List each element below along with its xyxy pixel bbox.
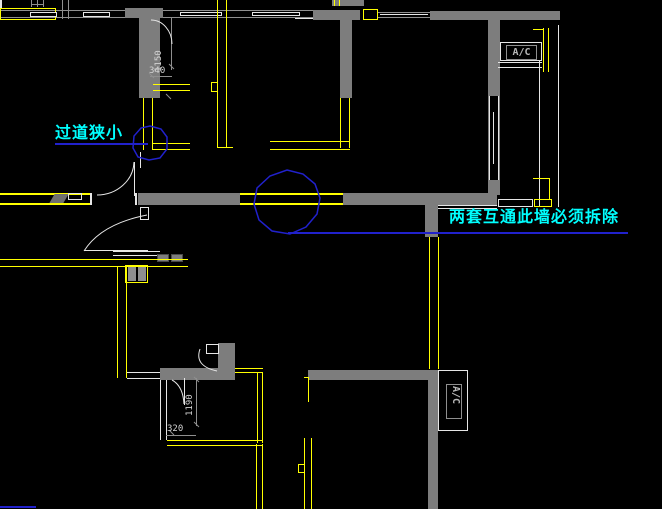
window-symbol	[83, 12, 110, 17]
wall-segment	[138, 193, 240, 205]
label-box-cut	[332, 0, 364, 6]
dimension-text: 320	[167, 424, 189, 434]
door-arc	[84, 215, 147, 251]
leader-line	[288, 232, 628, 234]
window-line	[380, 14, 428, 15]
corner-mark	[0, 0, 2, 8]
wall-outline	[217, 0, 227, 148]
wall-outline	[270, 141, 350, 150]
window-box	[534, 199, 552, 207]
wall-outline	[153, 143, 190, 150]
window-symbol	[30, 12, 57, 17]
wall-to-demolish[interactable]	[240, 193, 343, 205]
door-leaf	[140, 152, 141, 168]
window-symbol	[489, 96, 499, 180]
window-symbol	[68, 193, 82, 200]
window-box	[363, 9, 378, 20]
window-tick	[339, 0, 340, 6]
leader-line-fragment	[0, 506, 36, 508]
dimension-tick	[166, 94, 172, 100]
door-jamb	[135, 193, 137, 205]
dimension-line	[171, 18, 172, 70]
wall-line	[127, 372, 160, 379]
wall-outline	[117, 267, 127, 378]
wall-segment	[308, 370, 438, 380]
window-line	[549, 178, 550, 200]
annotation-text-demolish-wall[interactable]: 两套互通此墙必须拆除	[449, 209, 619, 225]
door-arc	[172, 380, 184, 404]
ac-label-bottom: A/C	[450, 386, 461, 404]
wall-notch	[211, 82, 218, 92]
wall-outline	[308, 378, 309, 402]
wall-outline	[256, 444, 263, 509]
counter-line	[113, 251, 160, 256]
curves-overlay	[0, 0, 662, 509]
annotation-text-narrow-passage[interactable]: 过道狭小	[55, 125, 123, 141]
wall-segment	[340, 18, 352, 98]
door-panel	[128, 267, 136, 281]
platform-line	[498, 62, 542, 68]
window-symbol	[180, 12, 222, 16]
door-frame	[140, 207, 149, 220]
wall-segment	[343, 193, 497, 205]
wall-cap	[217, 147, 233, 148]
door-panel	[138, 267, 146, 281]
wall-line	[295, 18, 313, 19]
exterior-wall-line	[378, 12, 430, 18]
wall-segment	[160, 368, 235, 380]
wall-outline	[429, 237, 439, 369]
wall-column	[218, 343, 235, 369]
ac-label-top: A/C	[506, 45, 537, 60]
wall-outline	[257, 372, 263, 443]
bay-line	[558, 25, 559, 207]
wall-outline	[0, 259, 188, 267]
dimension-line	[166, 435, 196, 436]
wall-cut-tick	[43, 0, 44, 7]
dimension-text-vertical: 1190	[185, 386, 195, 416]
window-line	[493, 112, 494, 164]
wall-segment	[430, 11, 560, 20]
dimension-line	[196, 378, 197, 426]
dimension-text: 340	[149, 66, 173, 76]
door-jamb	[90, 193, 92, 205]
wall-outline	[304, 438, 312, 509]
bay-line	[539, 60, 540, 207]
cad-canvas[interactable]: A/C 1150 340 过道狭小 两套互通此墙必须拆除	[0, 0, 662, 509]
door-arc	[97, 162, 134, 195]
window-symbol	[498, 199, 533, 207]
wall-segment	[313, 10, 360, 20]
wall-outline	[153, 84, 190, 91]
window-wall	[543, 28, 549, 72]
wall-line	[160, 380, 167, 440]
window-tick	[334, 0, 335, 6]
wall-outline	[167, 440, 263, 446]
window-symbol	[252, 12, 300, 16]
wall-segment	[428, 380, 438, 509]
door-leaf	[134, 162, 135, 196]
window-line	[533, 178, 550, 179]
wall-notch	[298, 464, 305, 473]
annotation-underline	[55, 143, 148, 145]
door-frame	[206, 344, 219, 354]
